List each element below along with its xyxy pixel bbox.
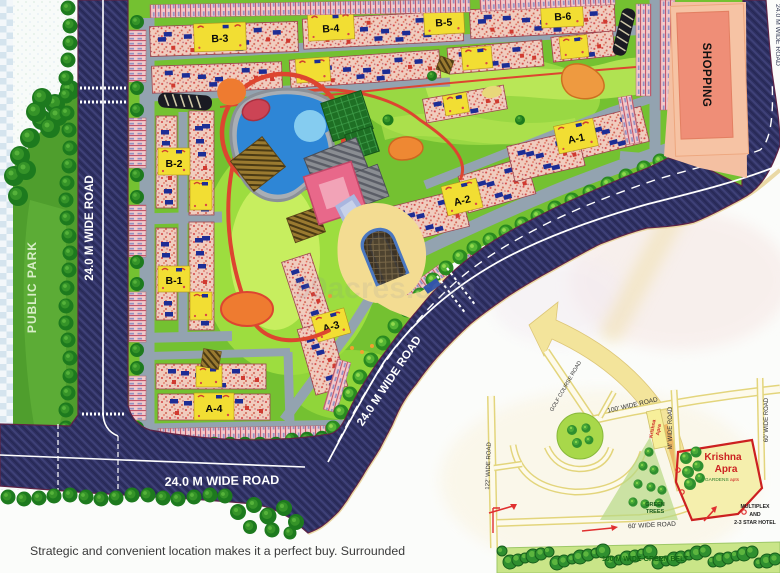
svg-text:B-4: B-4 [322, 23, 340, 36]
svg-text:B-5: B-5 [435, 17, 453, 30]
svg-text:A-4: A-4 [206, 403, 223, 415]
svg-text:Strategic and convenient locat: Strategic and convenient location makes … [30, 544, 405, 558]
svg-text:B-6: B-6 [554, 11, 572, 24]
svg-text:GREEN: GREEN [645, 502, 665, 508]
svg-text:AND: AND [749, 512, 760, 518]
svg-text:PUBLIC PARK: PUBLIC PARK [25, 241, 39, 333]
svg-text:2-3 STAR HOTEL: 2-3 STAR HOTEL [734, 520, 777, 526]
svg-text:99acres.com: 99acres.com [294, 272, 476, 305]
svg-text:SHOPPING: SHOPPING [700, 43, 712, 108]
svg-text:100 M WIDE GREEN BELT: 100 M WIDE GREEN BELT [602, 556, 689, 563]
svg-text:Krishna: Krishna [704, 452, 742, 463]
svg-text:TREES: TREES [646, 509, 665, 515]
svg-text:60' WIDE ROAD: 60' WIDE ROAD [764, 397, 770, 442]
svg-text:B-1: B-1 [166, 275, 183, 287]
svg-text:24.0 M WIDE ROAD: 24.0 M WIDE ROAD [84, 175, 96, 280]
svg-text:M' WIDE ROAD: M' WIDE ROAD [668, 406, 674, 449]
svg-text:GARDENS apts: GARDENS apts [705, 477, 740, 483]
svg-text:24.0 M WIDE ROAD: 24.0 M WIDE ROAD [165, 473, 280, 489]
svg-text:B-2: B-2 [166, 158, 183, 170]
svg-text:B-3: B-3 [211, 33, 228, 46]
svg-text:Apra: Apra [715, 464, 738, 475]
svg-text:MULTIPLEX: MULTIPLEX [740, 504, 770, 510]
svg-text:24.0 M WIDE ROAD: 24.0 M WIDE ROAD [774, 4, 780, 66]
